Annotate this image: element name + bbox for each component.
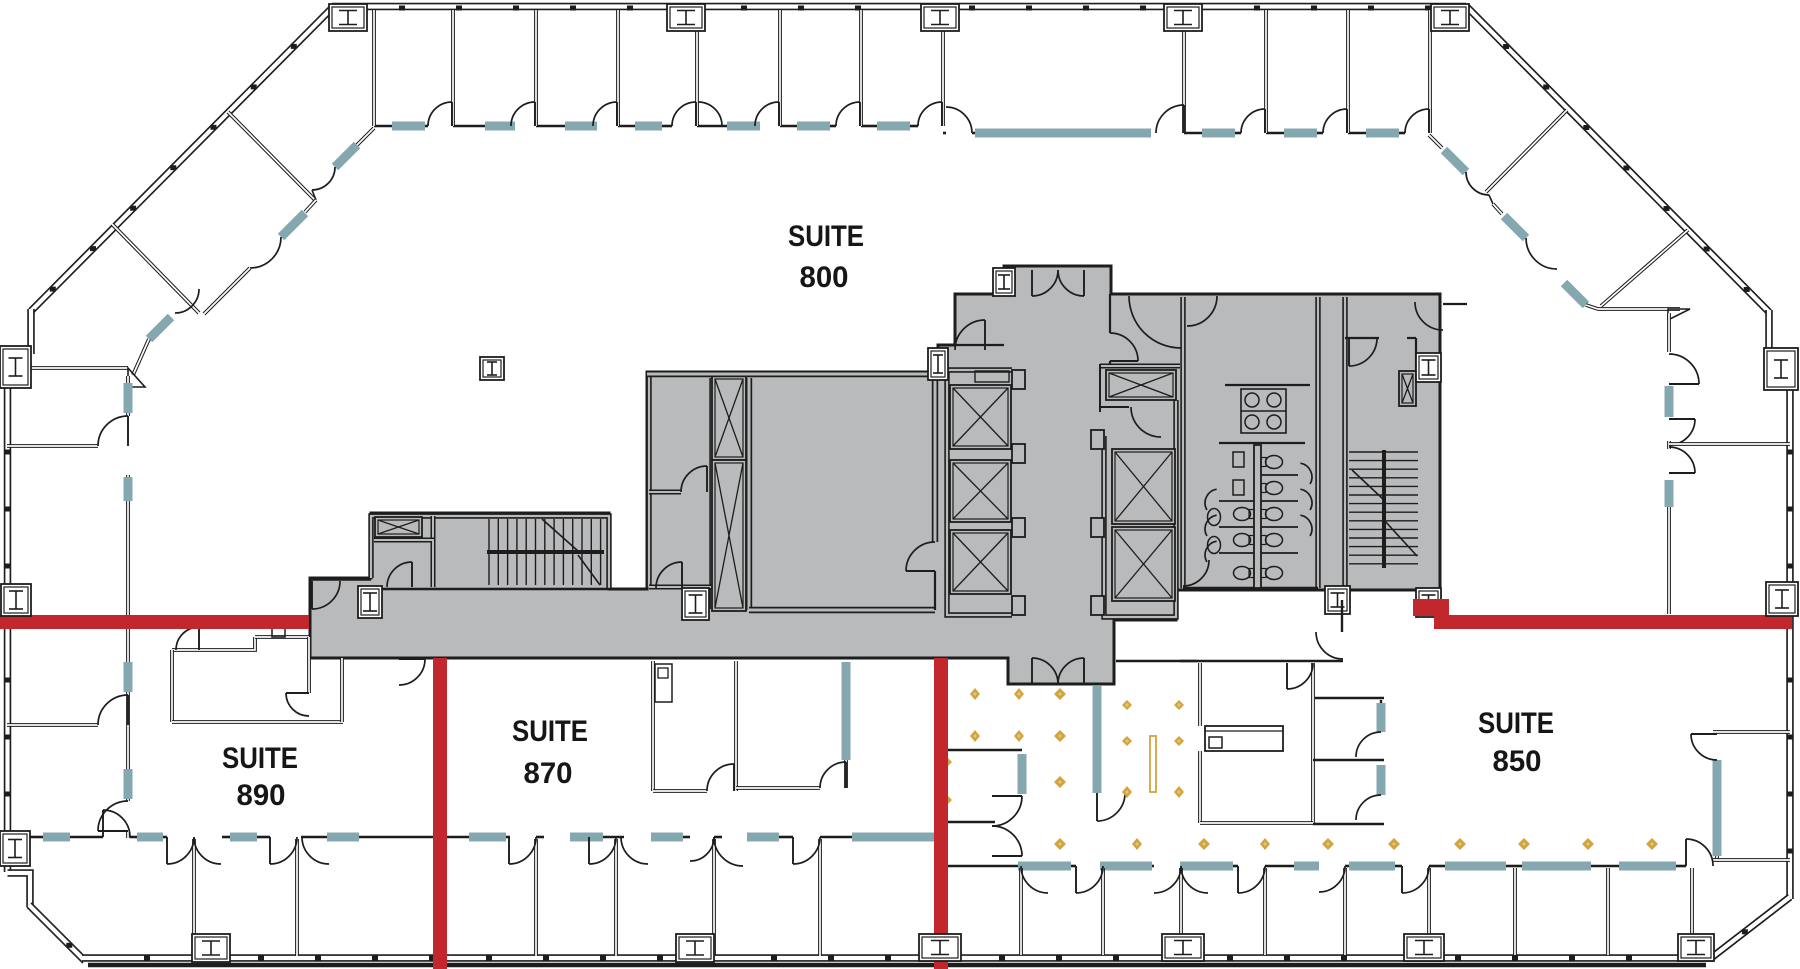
svg-text:800: 800 [800, 261, 849, 294]
svg-text:SUITE: SUITE [222, 742, 298, 775]
svg-text:890: 890 [237, 779, 286, 812]
svg-text:870: 870 [524, 757, 573, 790]
svg-text:SUITE: SUITE [1478, 707, 1554, 740]
svg-text:SUITE: SUITE [512, 715, 588, 748]
svg-text:SUITE: SUITE [788, 220, 864, 253]
svg-text:850: 850 [1493, 745, 1542, 778]
